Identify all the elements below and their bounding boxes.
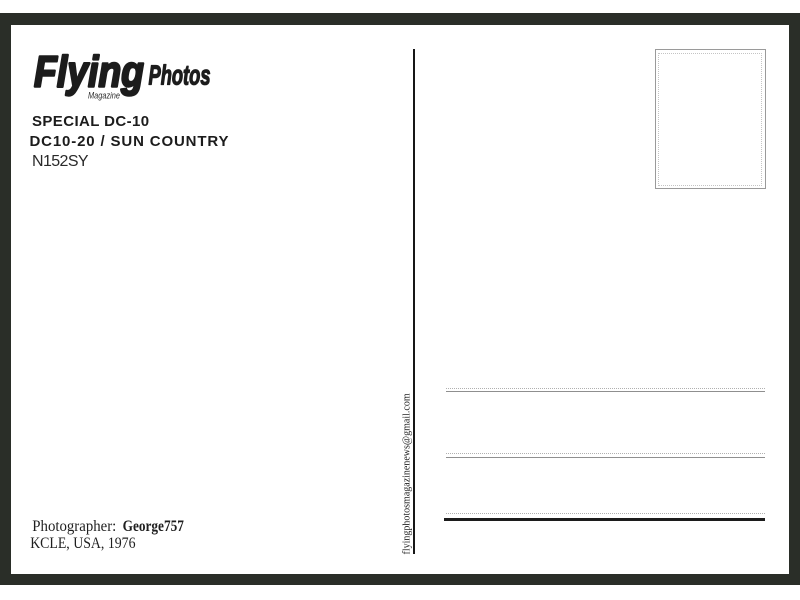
svg-text:George757: George757 [123, 518, 184, 535]
svg-text:Magazine: Magazine [88, 90, 120, 101]
svg-text:Flying: Flying [34, 48, 144, 97]
svg-text:Photos: Photos [149, 59, 211, 90]
svg-text:Photographer:: Photographer: [32, 518, 116, 535]
svg-text:KCLE, USA, 1976: KCLE, USA, 1976 [30, 535, 135, 552]
